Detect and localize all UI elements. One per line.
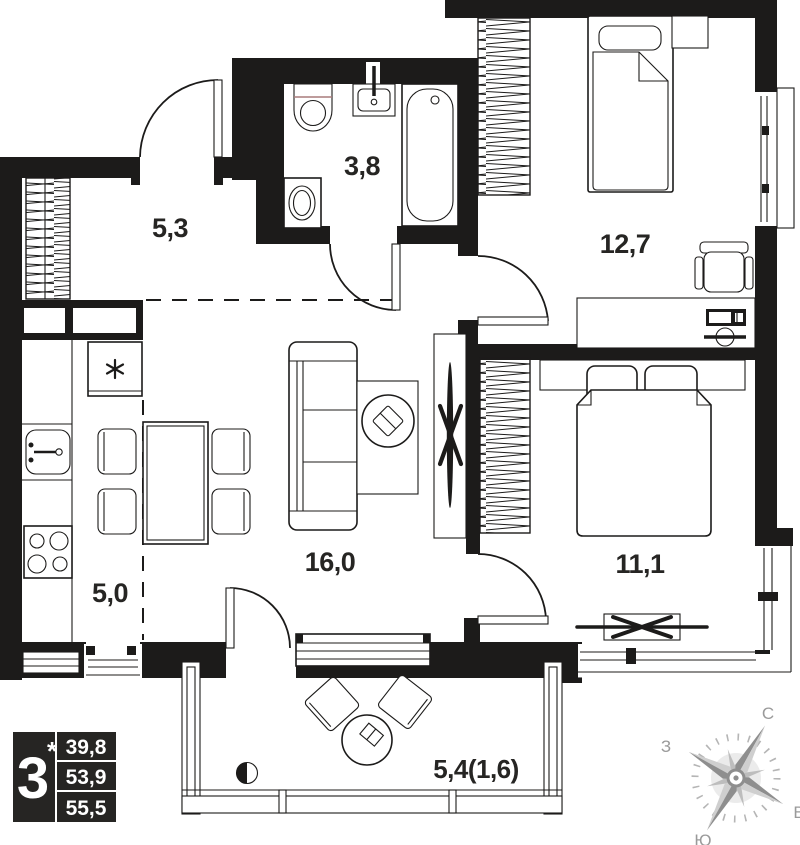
compass-east-label: В xyxy=(793,803,800,822)
living-room xyxy=(98,334,466,648)
window-bedroom1 xyxy=(755,88,794,228)
balcony-door xyxy=(226,588,290,648)
room-label-bedroom1: 12,7 xyxy=(600,229,651,259)
bathtub-icon xyxy=(402,84,458,226)
compass-rose-icon: С З В Ю xyxy=(660,699,800,845)
bedroom2-door xyxy=(478,554,548,624)
hallway xyxy=(26,80,392,300)
bedroom1-chair-icon xyxy=(695,242,753,292)
room-label-kitchen: 5,0 xyxy=(92,578,128,608)
bedroom1-wardrobe xyxy=(478,18,530,195)
bedroom2-tv-icon xyxy=(577,614,707,640)
bedroom1 xyxy=(478,16,755,348)
living-tv-icon xyxy=(434,334,466,538)
rooms-area-badge: 3 * 39,8 53,9 55,5 xyxy=(13,732,116,822)
room-label-balcony: 5,4(1,6) xyxy=(433,754,519,784)
stove-icon xyxy=(24,526,72,578)
bedroom1-bed-icon xyxy=(588,16,673,192)
compass-north-label: С xyxy=(762,704,774,723)
balcony-railing xyxy=(182,790,562,813)
bedroom2 xyxy=(478,358,745,640)
lamp-icon xyxy=(237,763,258,784)
window-bedroom2-corner xyxy=(568,546,795,678)
entry-door xyxy=(140,80,222,157)
badge-living-area: 39,8 xyxy=(66,736,107,759)
balcony-table-icon xyxy=(342,715,392,765)
washing-machine-icon xyxy=(284,178,321,228)
compass-south-label: Ю xyxy=(694,831,711,845)
bedroom1-door xyxy=(478,256,548,325)
floorplan-page: 5,3 3,8 12,7 16,0 11,1 5,0 5,4(1,6) 3 * … xyxy=(0,0,800,845)
badge-asterisk: * xyxy=(47,736,58,766)
room-label-hallway: 5,3 xyxy=(152,213,189,243)
bedroom1-nightstand xyxy=(672,16,708,48)
bedroom1-desk-icon xyxy=(577,298,755,348)
floorplan-drawing: 5,3 3,8 12,7 16,0 11,1 5,0 5,4(1,6) 3 * … xyxy=(0,0,800,845)
room-label-bathroom: 3,8 xyxy=(344,151,381,181)
room-label-bedroom2: 11,1 xyxy=(615,549,665,579)
compass-west-label: З xyxy=(661,737,671,756)
refrigerator-icon xyxy=(88,342,142,396)
window-living-balcony xyxy=(296,634,430,666)
sofa-icon xyxy=(289,342,357,530)
bedroom2-wardrobe xyxy=(480,358,530,533)
bedroom2-bed-icon xyxy=(540,360,745,536)
hallway-wardrobe xyxy=(26,178,70,299)
bathroom xyxy=(284,62,458,310)
window-kitchen-left xyxy=(23,652,79,673)
balcony xyxy=(182,662,562,814)
badge-rooms-count: 3 xyxy=(17,746,49,811)
badge-apartment-area: 53,9 xyxy=(66,766,107,789)
toilet-icon xyxy=(294,84,332,131)
balcony-chair-icon-2 xyxy=(377,674,433,730)
kitchen-sink-icon xyxy=(22,424,72,480)
coffee-table-icon xyxy=(362,395,414,447)
window-kitchen-balcony xyxy=(84,644,142,678)
badge-total-area: 55,5 xyxy=(66,797,107,820)
room-label-living: 16,0 xyxy=(305,547,356,577)
